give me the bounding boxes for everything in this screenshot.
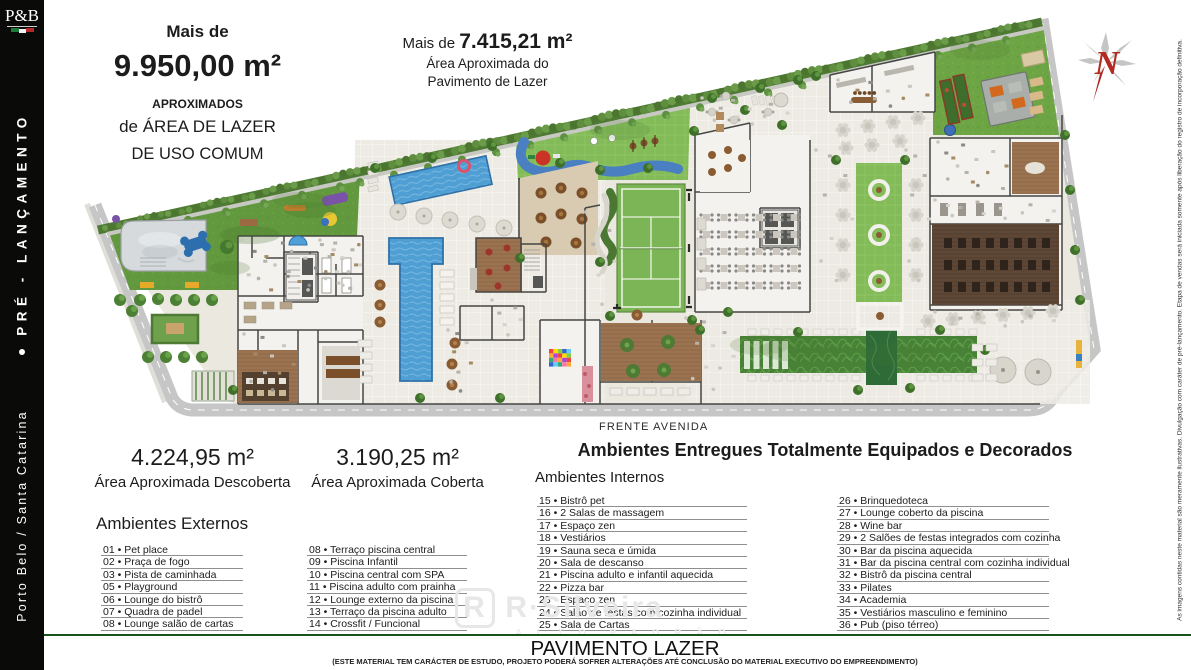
svg-text:FRENTE AVENIDA: FRENTE AVENIDA xyxy=(599,421,708,433)
svg-text:N: N xyxy=(1094,45,1121,82)
